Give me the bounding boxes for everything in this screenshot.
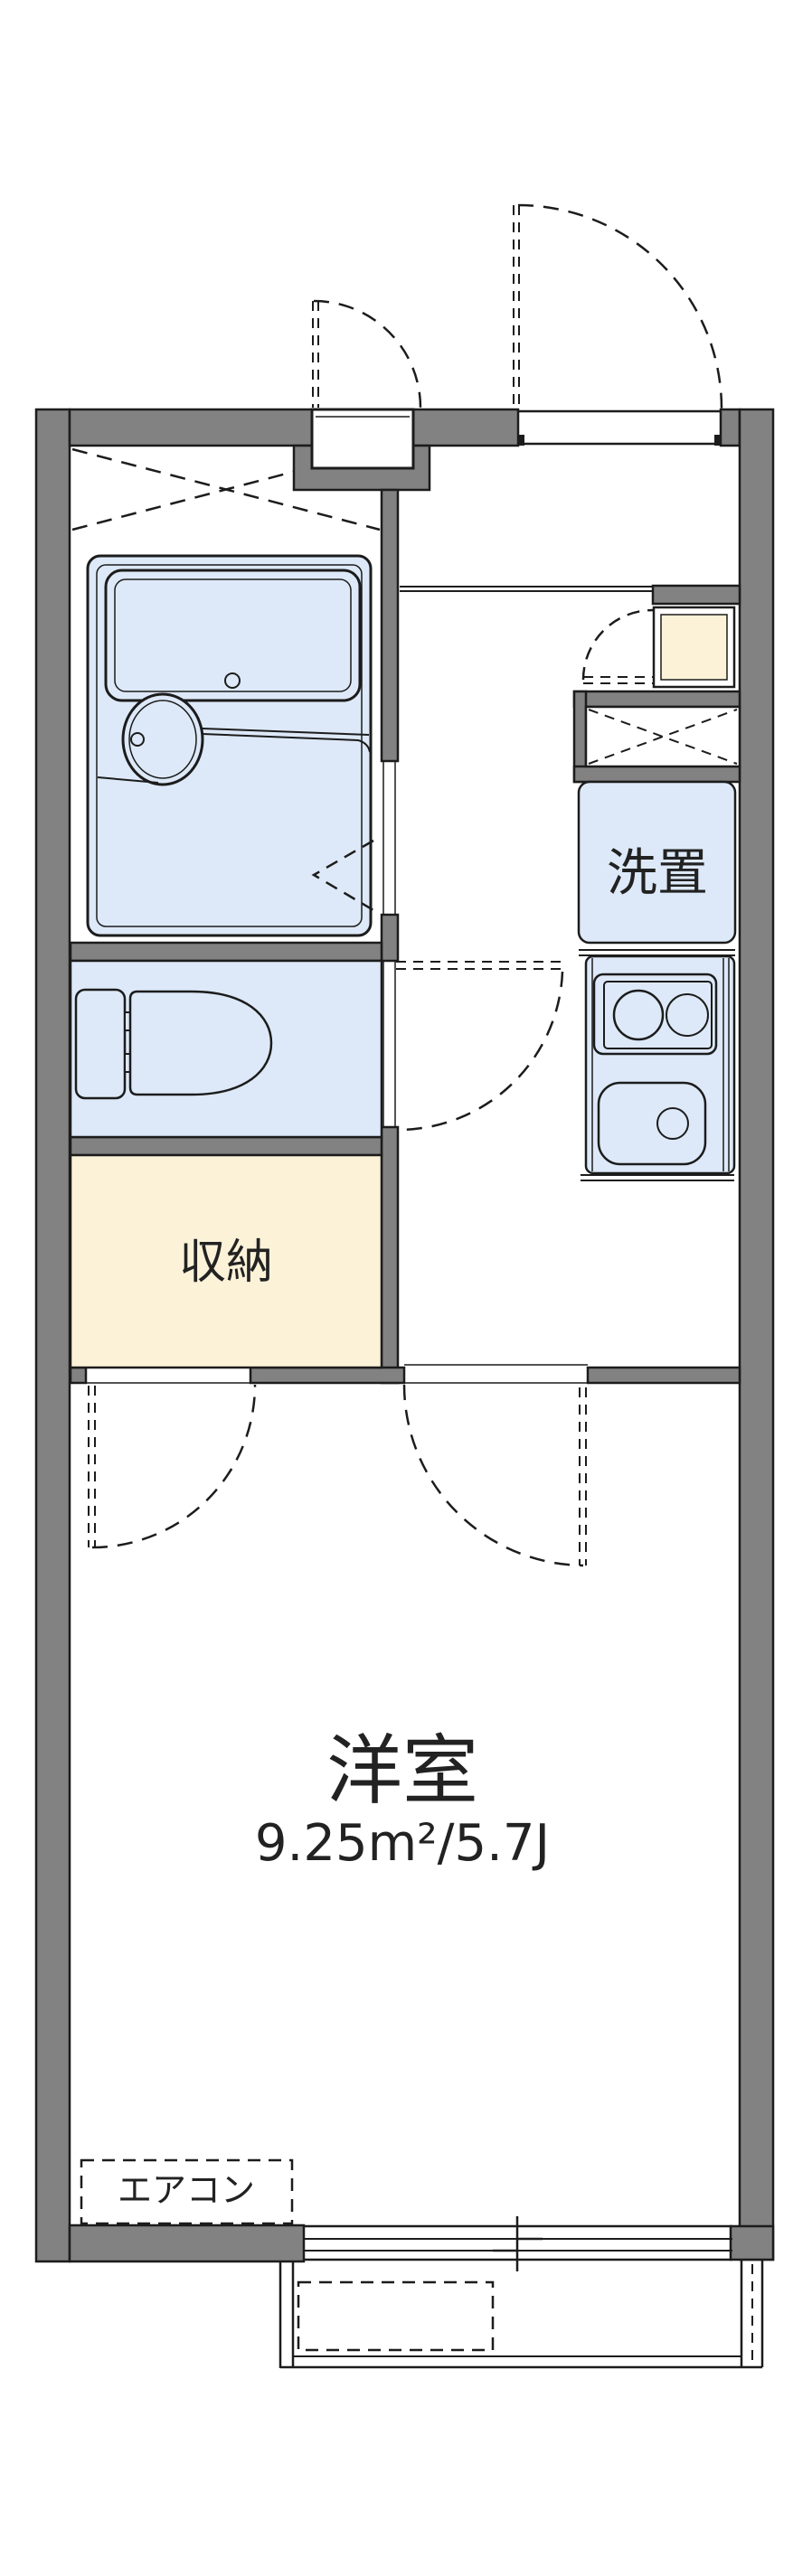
bedroom-size-label: 9.25m²/5.7J	[255, 1814, 550, 1873]
floor-plan: 収納 洗置	[0, 0, 812, 2576]
shoe-cabinet-door-arc	[583, 610, 653, 680]
entrance-door-stop	[714, 435, 721, 446]
wall-bottom-right-block	[731, 2226, 773, 2260]
wall-bedroom-top-right	[588, 1368, 740, 1383]
washer-space-label: 洗置	[607, 844, 708, 903]
stove-burner	[666, 994, 708, 1036]
wall-right-outer	[740, 409, 773, 2260]
overhead-cabinet	[586, 707, 740, 766]
wall-top-left	[70, 409, 312, 446]
kitchen	[579, 950, 735, 1180]
wall-nook-top	[653, 586, 740, 604]
wall-bedroom-top-stub	[71, 1368, 86, 1383]
kitchen-sink	[599, 1083, 705, 1164]
wall-top-right	[721, 409, 740, 446]
sink-drain	[657, 1108, 688, 1139]
entry-recess	[312, 409, 413, 468]
wall-bath-toilet	[71, 943, 382, 961]
storage-closet: 収納	[71, 1155, 382, 1368]
wall-toilet-storage	[71, 1137, 382, 1155]
toilet-room	[71, 961, 562, 1137]
recess-door-swing-arc	[314, 301, 420, 408]
balcony-dashed-area	[298, 2282, 493, 2350]
laundry-space: 洗置	[579, 707, 740, 943]
wall-cabinet-bottom	[574, 766, 740, 782]
bedroom: 洋室 9.25m²/5.7J エアコン	[81, 1365, 588, 2223]
entrance-door-swing-arc	[518, 205, 722, 409]
stove-burner	[614, 991, 663, 1039]
bathtub-drain	[225, 673, 240, 688]
wall-bath-right	[382, 490, 398, 761]
window-balcony	[280, 2216, 762, 2368]
wall-toilet-storage-right	[382, 1127, 398, 1383]
washbasin-faucet	[131, 733, 144, 746]
wall-bedroom-top-mid	[250, 1368, 404, 1383]
storage-label: 収納	[179, 1236, 273, 1290]
entrance-door-stop	[518, 435, 524, 446]
floor-plan-canvas: 収納 洗置	[0, 0, 812, 2576]
storage-door-swing-arc	[92, 1385, 255, 1547]
wall-nook-bottom	[574, 691, 740, 707]
toilet-bowl	[130, 992, 271, 1095]
toilet-tank	[76, 990, 125, 1098]
wall-top-middle	[413, 409, 518, 446]
entry-area	[312, 205, 734, 687]
unit-bath	[88, 556, 395, 935]
bedroom-label: 洋室	[326, 1726, 478, 1815]
bedroom-door-swing-arc	[404, 1385, 583, 1565]
wall-bottom-left	[70, 2225, 304, 2261]
aircon-label: エアコン	[118, 2170, 255, 2210]
wall-bath-right-stub	[382, 915, 398, 961]
toilet-door-swing-arc	[398, 972, 562, 1130]
shoe-cabinet-inner	[661, 615, 727, 680]
wall-left-outer	[36, 409, 70, 2261]
